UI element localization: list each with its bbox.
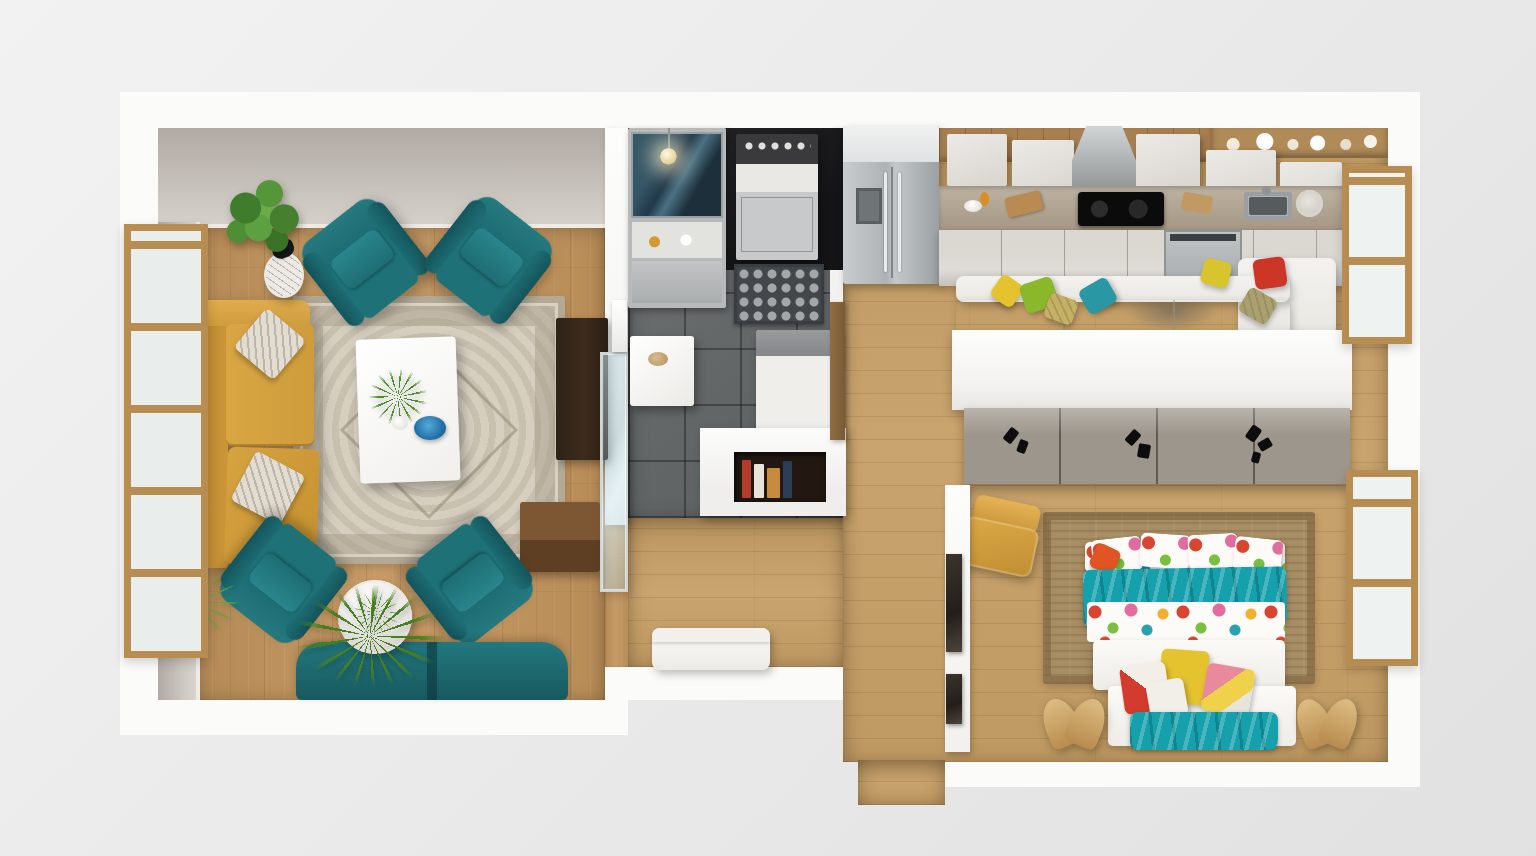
- bed-pillow: [1187, 533, 1239, 570]
- book-spine: [742, 460, 751, 498]
- hallway-bench: [652, 628, 770, 670]
- walnut-cube-table: [520, 502, 600, 572]
- wardrobe-top-wall: [952, 330, 1352, 410]
- throw-pillow-red: [1252, 256, 1288, 290]
- kitchen-window: [1342, 166, 1412, 344]
- bed-floral-duvet: [1087, 602, 1285, 642]
- white-bowl: [964, 200, 982, 212]
- leaning-plate: [1296, 190, 1323, 217]
- wardrobe-handle: [1137, 443, 1151, 459]
- book-spine: [767, 468, 780, 498]
- blue-glass-dish: [414, 416, 446, 440]
- glass-display-cabinet: [628, 128, 726, 308]
- fridge-handle: [898, 172, 901, 272]
- apartment-floor-plan-render: [0, 0, 1536, 856]
- leaning-art-card: [612, 300, 627, 352]
- wood-door: [830, 302, 845, 440]
- kitchen-sink: [1244, 192, 1292, 220]
- patterned-tile-mat: [734, 264, 824, 324]
- bed-pillow: [1139, 532, 1191, 569]
- coffee-table-vase: [392, 416, 408, 430]
- upper-cabinet: [1136, 134, 1200, 188]
- fridge-water-dispenser: [856, 188, 882, 224]
- apartment-plan: [0, 0, 1536, 856]
- potted-fern: [218, 172, 310, 262]
- bedroom-entry-rail: [1352, 334, 1362, 480]
- corner-bench: [756, 330, 840, 440]
- butterfly-chair: [1044, 698, 1104, 754]
- book-niche: [734, 452, 826, 502]
- folded-teal-throw: [1130, 712, 1278, 750]
- fridge-handle: [884, 172, 887, 272]
- entry-threshold-floor: [858, 760, 945, 805]
- pendant-cord: [668, 128, 670, 150]
- framed-picture: [946, 554, 962, 652]
- glass-cabinet-doors: [632, 261, 722, 302]
- glass-cabinet-top: [631, 132, 723, 218]
- framed-picture: [946, 674, 962, 724]
- foot-pillow-pink-yellow: [1200, 662, 1256, 718]
- butterfly-chair: [1298, 698, 1356, 754]
- upper-cabinet: [947, 134, 1007, 186]
- pendant-lamp: [660, 148, 677, 165]
- sliding-glass-door: [600, 352, 628, 592]
- book-spine: [754, 464, 764, 498]
- compact-kitchen-unit: [736, 134, 818, 260]
- glass-cabinet-shelf: [632, 222, 722, 258]
- faucet: [1262, 186, 1271, 195]
- spiky-floor-plant: [294, 584, 446, 688]
- living-room-window: [124, 224, 208, 658]
- book-spine: [783, 461, 792, 498]
- cooktop: [1078, 192, 1164, 226]
- breakfast-table: [630, 336, 694, 406]
- bedroom-window: [1346, 470, 1418, 666]
- bread-item: [648, 352, 668, 366]
